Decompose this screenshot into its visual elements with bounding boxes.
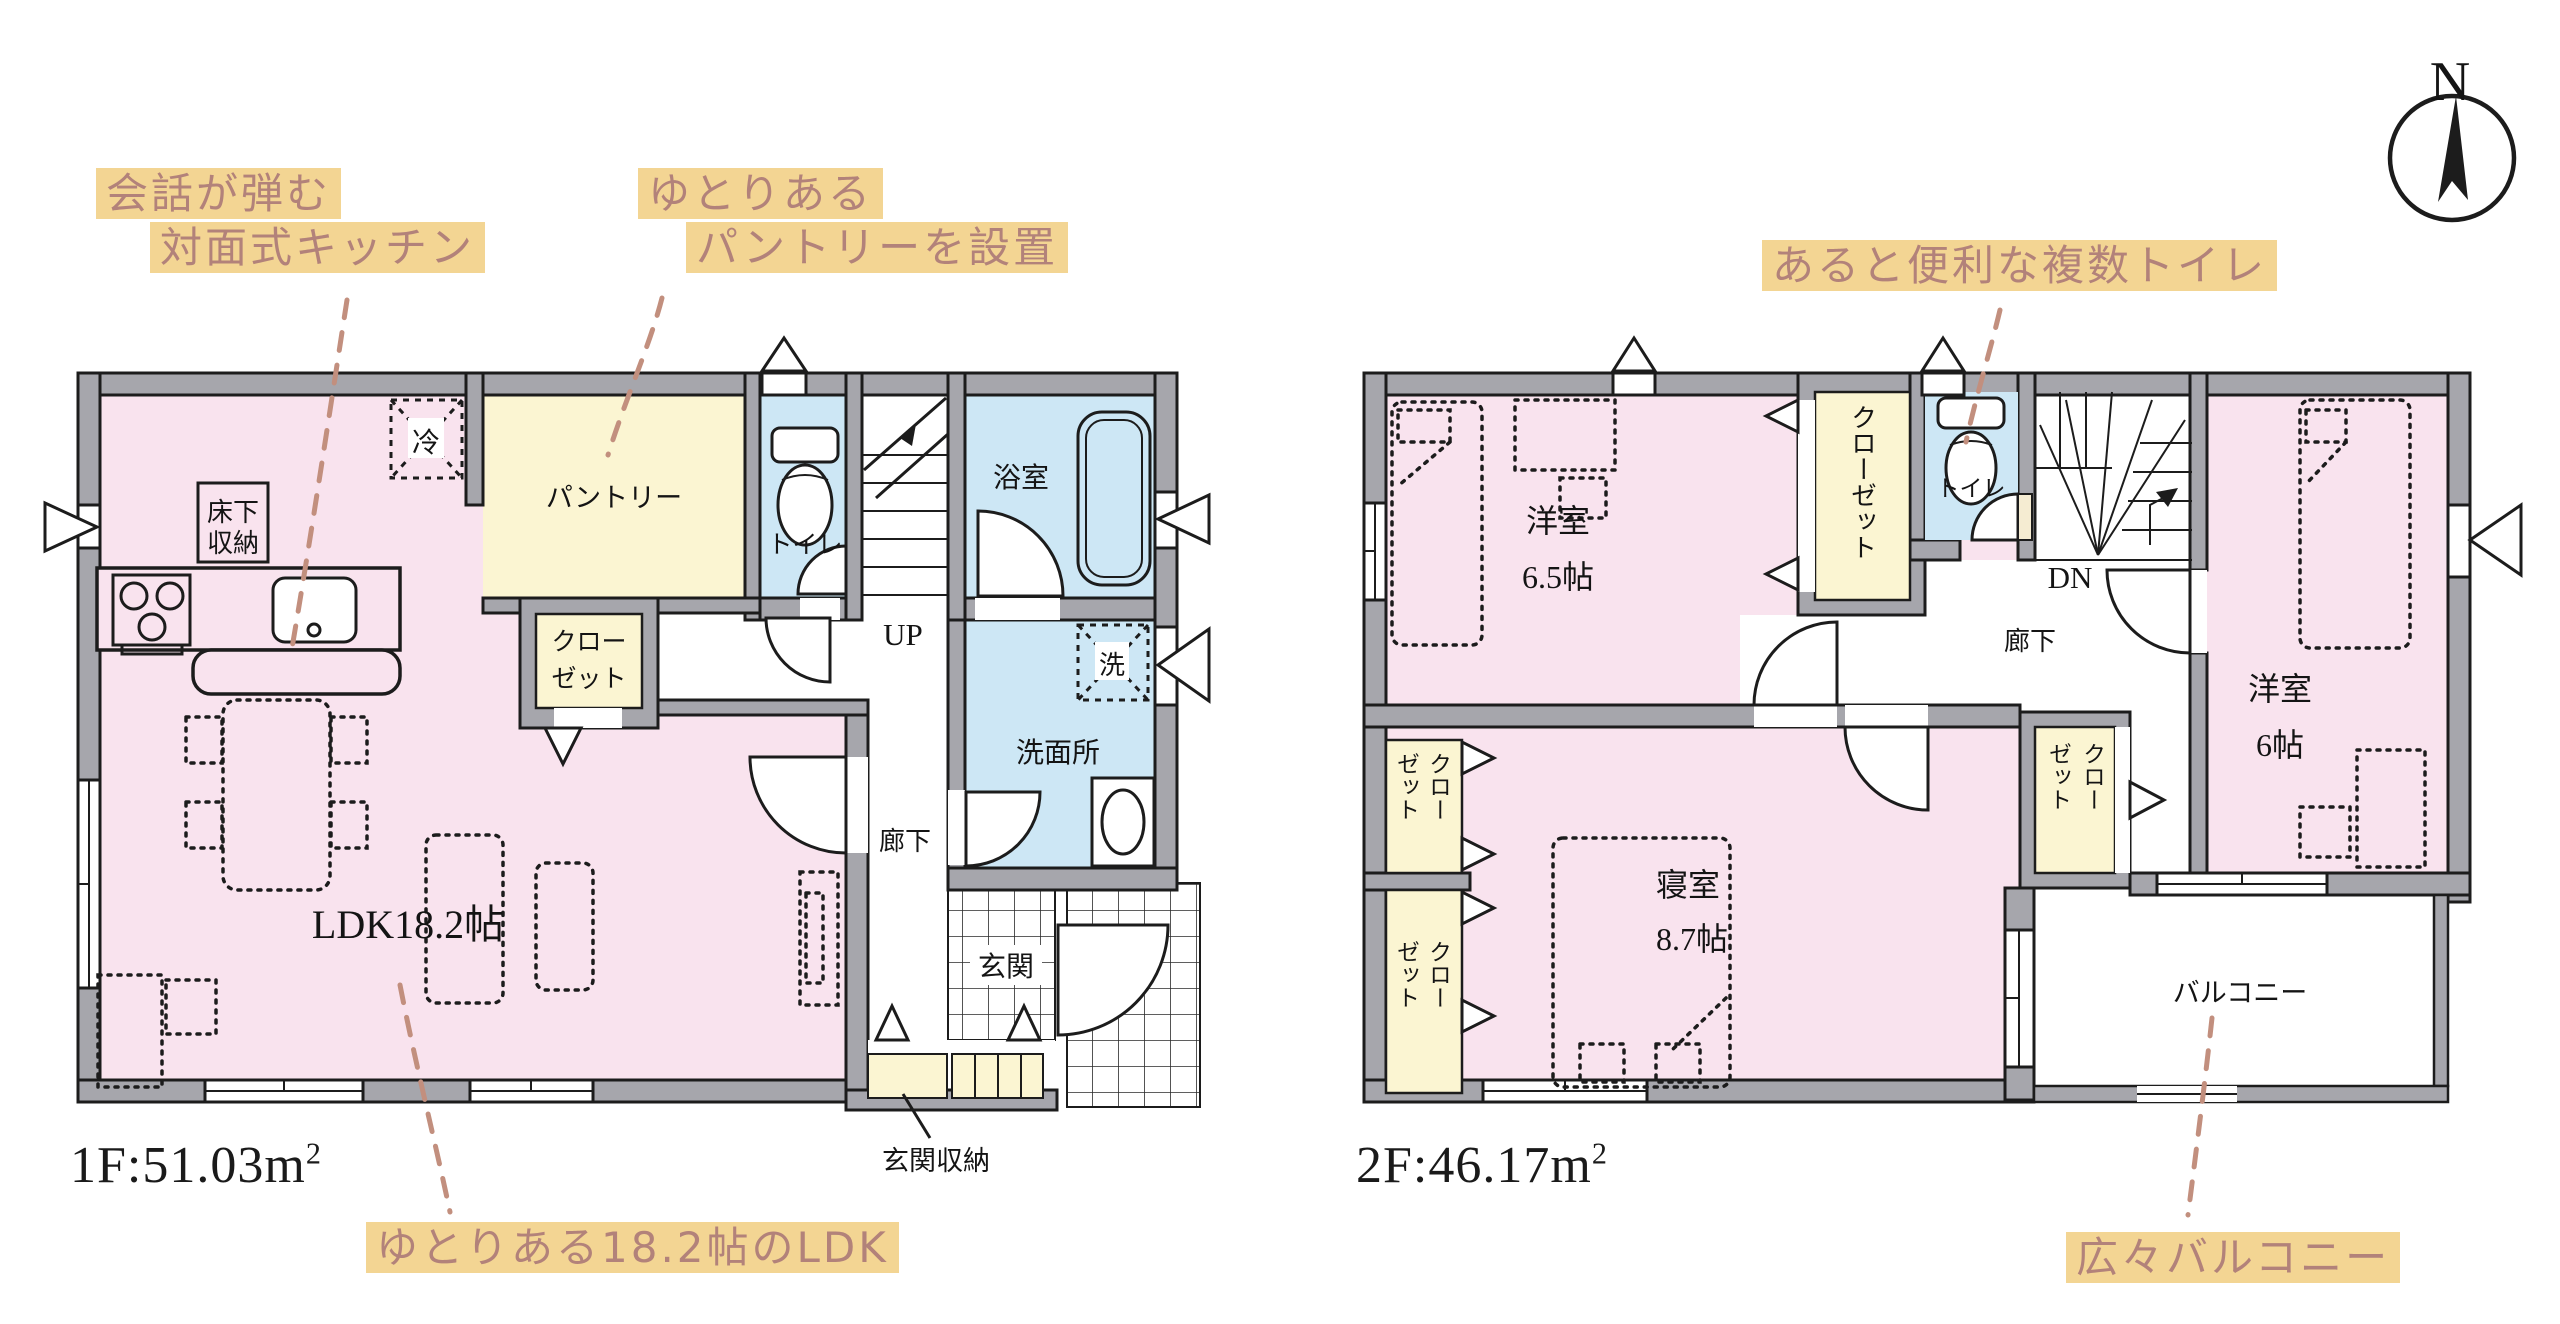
f2-closet1-col2: ゼット xyxy=(1394,752,1420,821)
f2-room6-name: 洋室 xyxy=(2248,671,2312,707)
f1-wall-left xyxy=(78,373,100,1102)
f1-wall-toilet-right xyxy=(846,373,862,620)
f2-room6-size: 6帖 xyxy=(2256,727,2304,763)
f2-balcony-label: バルコニー xyxy=(2173,978,2307,1008)
compass-icon: N xyxy=(2390,51,2514,220)
f1-washroom-label: 洗面所 xyxy=(1016,737,1100,769)
f1-underfloor-label1: 床下 xyxy=(207,498,259,527)
f2-bedroom-name: 寝室 xyxy=(1656,867,1720,903)
f2-balcony-parapet-bottom xyxy=(2034,1086,2448,1102)
f2-wall-right xyxy=(2448,373,2470,902)
f2-top-window1 xyxy=(1613,373,1655,395)
f2-room65-size: 6.5帖 xyxy=(1522,559,1594,595)
f2-bedroom-size: 8.7帖 xyxy=(1656,921,1728,957)
f2-wall-stairs-right xyxy=(2190,373,2207,570)
f2-right-casement-icon xyxy=(2470,505,2521,575)
f2-closet-small-col1: クロー xyxy=(2080,742,2105,811)
f1-wall-vestibule-bottom xyxy=(656,700,868,715)
f2-top-casement1-icon xyxy=(1613,338,1655,371)
annotation-pantry-line1: ゆとりある xyxy=(638,170,883,218)
f2-closet-top-label: クローゼット xyxy=(1848,404,1877,560)
f2-closet2-col1: クロー xyxy=(1426,940,1451,1009)
f2-room65-name: 洋室 xyxy=(1526,503,1590,539)
f2-wall-closet-divider xyxy=(1364,873,1470,890)
f2-wall-left xyxy=(1364,373,1386,1102)
f1-up-label: UP xyxy=(883,617,923,652)
annotation-kitchen-line1: 会話が弾む xyxy=(96,170,341,218)
annotation-kitchen-line2: 対面式キッチン xyxy=(150,224,485,272)
f1-washroom-door-opening xyxy=(948,790,965,865)
f1-underfloor-label2: 収納 xyxy=(207,529,259,558)
f2-wall-room6-left xyxy=(2190,653,2207,895)
f1-entrance-storage-box xyxy=(868,1054,947,1098)
f1-ldk-label: LDK18.2帖 xyxy=(312,902,504,947)
f2-closet2-col2: ゼット xyxy=(1394,940,1420,1009)
floorplan-page: LDK18.2帖 パントリー クロー ゼット トイレ 浴室 洗面所 洗 冷 床下… xyxy=(0,0,2560,1324)
f2-closet1-col1: クロー xyxy=(1426,752,1451,821)
f2-dn-label: DN xyxy=(2048,560,2093,595)
f2-right-window xyxy=(2448,505,2470,577)
f1-sink-icon xyxy=(273,578,356,642)
f2-top-window2 xyxy=(1922,373,1964,395)
floor2-plan: 洋室 6.5帖 クローゼット トイレ DN 廊下 洋室 6帖 寝室 8.7帖 ク… xyxy=(1364,338,2521,1102)
compass-n-label: N xyxy=(2430,51,2470,113)
floor1-plan: LDK18.2帖 パントリー クロー ゼット トイレ 浴室 洗面所 洗 冷 床下… xyxy=(45,338,1209,1176)
f1-bath-door-opening xyxy=(975,598,1060,620)
f1-entrance-label: 玄関 xyxy=(978,951,1034,983)
f2-toilet-door-leaf xyxy=(2018,494,2032,540)
f1-toilet-casement-icon xyxy=(762,338,806,371)
f1-closet-label1: クロー xyxy=(551,629,626,656)
f1-ldk-door-opening xyxy=(846,757,868,853)
f2-balcony-parapet-right xyxy=(2434,895,2448,1086)
f1-storage-front xyxy=(868,1040,1055,1054)
f2-wall-toilet-bottom xyxy=(1910,540,1960,560)
f1-hall-label: 廊下 xyxy=(879,827,931,856)
floorplan-drawing: LDK18.2帖 パントリー クロー ゼット トイレ 浴室 洗面所 洗 冷 床下… xyxy=(0,0,2560,1324)
f2-stairs-area xyxy=(2035,392,2192,560)
f1-pantry-label: パントリー xyxy=(546,483,682,513)
f1-closet-opening xyxy=(554,708,622,728)
floor1-area-label: 1F:51.03m2 xyxy=(70,1136,322,1195)
f1-washer-label: 洗 xyxy=(1099,651,1125,680)
f1-wall-toilet-left xyxy=(745,373,760,620)
f1-wall-pantry-left xyxy=(466,373,483,505)
f1-toilet-window xyxy=(762,373,806,395)
annotation-toilets: あると便利な複数トイレ xyxy=(1762,242,2277,290)
f1-toilet-fixture-icon xyxy=(772,428,838,545)
f1-wall-stairs-right xyxy=(948,373,965,620)
f1-bath-label: 浴室 xyxy=(993,462,1049,494)
annotation-balcony: 広々バルコニー xyxy=(2066,1234,2400,1282)
f2-closet-small-col2: ゼット xyxy=(2046,742,2072,811)
f1-entrance-storage-label: 玄関収納 xyxy=(882,1146,990,1176)
f2-hall-label: 廊下 xyxy=(2004,627,2056,656)
f2-toilet-label: トイレ xyxy=(1937,476,2006,501)
floor2-area-label: 2F:46.17m2 xyxy=(1356,1136,1608,1195)
f1-fridge-label: 冷 xyxy=(412,427,440,459)
f1-wall-bottom xyxy=(78,1080,846,1102)
f2-top-casement2-icon xyxy=(1922,338,1964,371)
f1-wall-washroom-bottom xyxy=(948,868,1177,890)
annotation-ldk: ゆとりある18.2帖のLDK xyxy=(366,1224,899,1272)
annotation-pantry-line2: パントリーを設置 xyxy=(686,224,1068,272)
f1-closet-label2: ゼット xyxy=(551,665,626,693)
f1-vanity-icon xyxy=(1092,778,1154,866)
f1-stairs-area xyxy=(862,395,948,620)
f1-toilet-label: トイレ xyxy=(767,532,842,559)
